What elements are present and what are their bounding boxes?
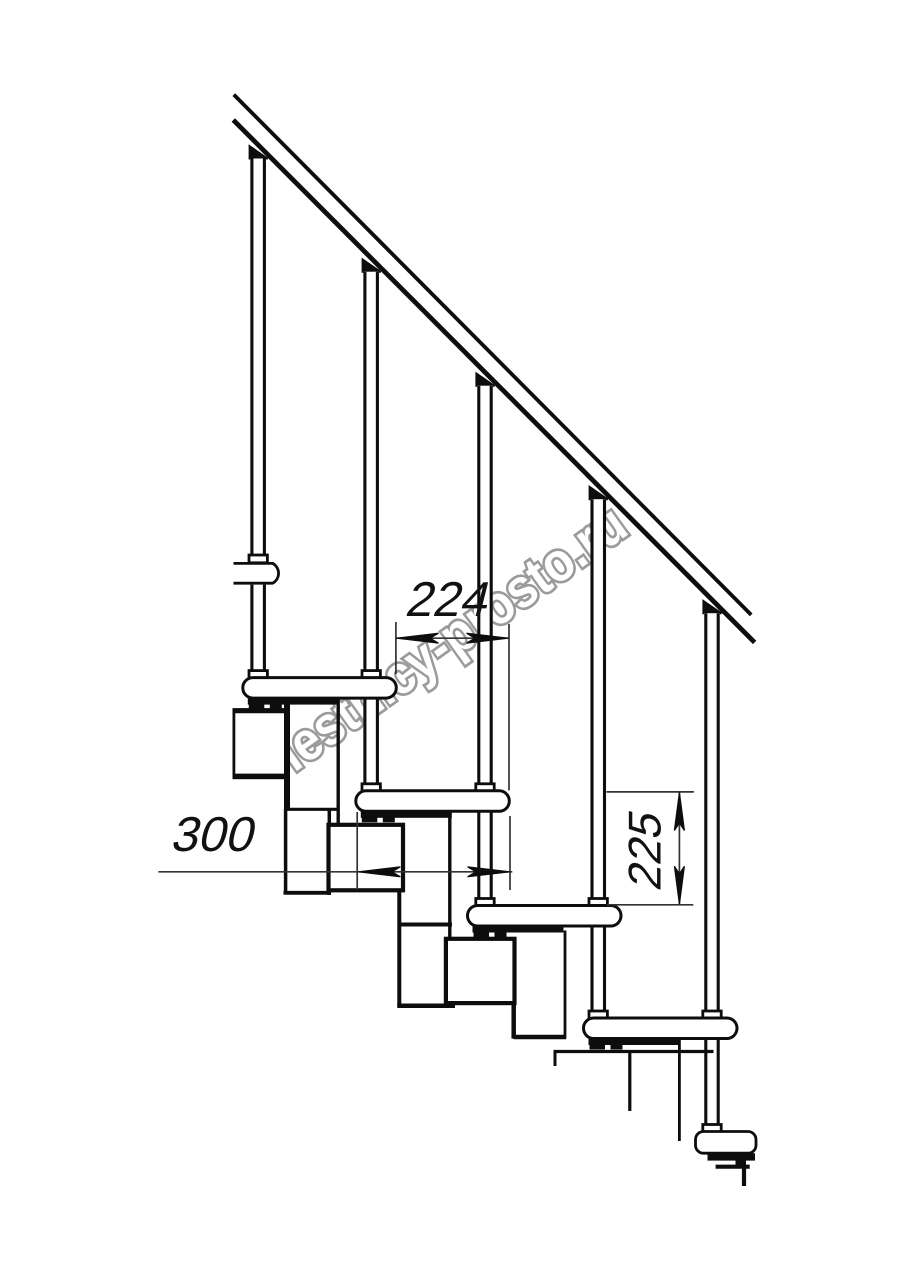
svg-text:225: 225 <box>619 805 670 894</box>
svg-text:224: 224 <box>401 572 497 627</box>
svg-text:300: 300 <box>167 807 263 862</box>
